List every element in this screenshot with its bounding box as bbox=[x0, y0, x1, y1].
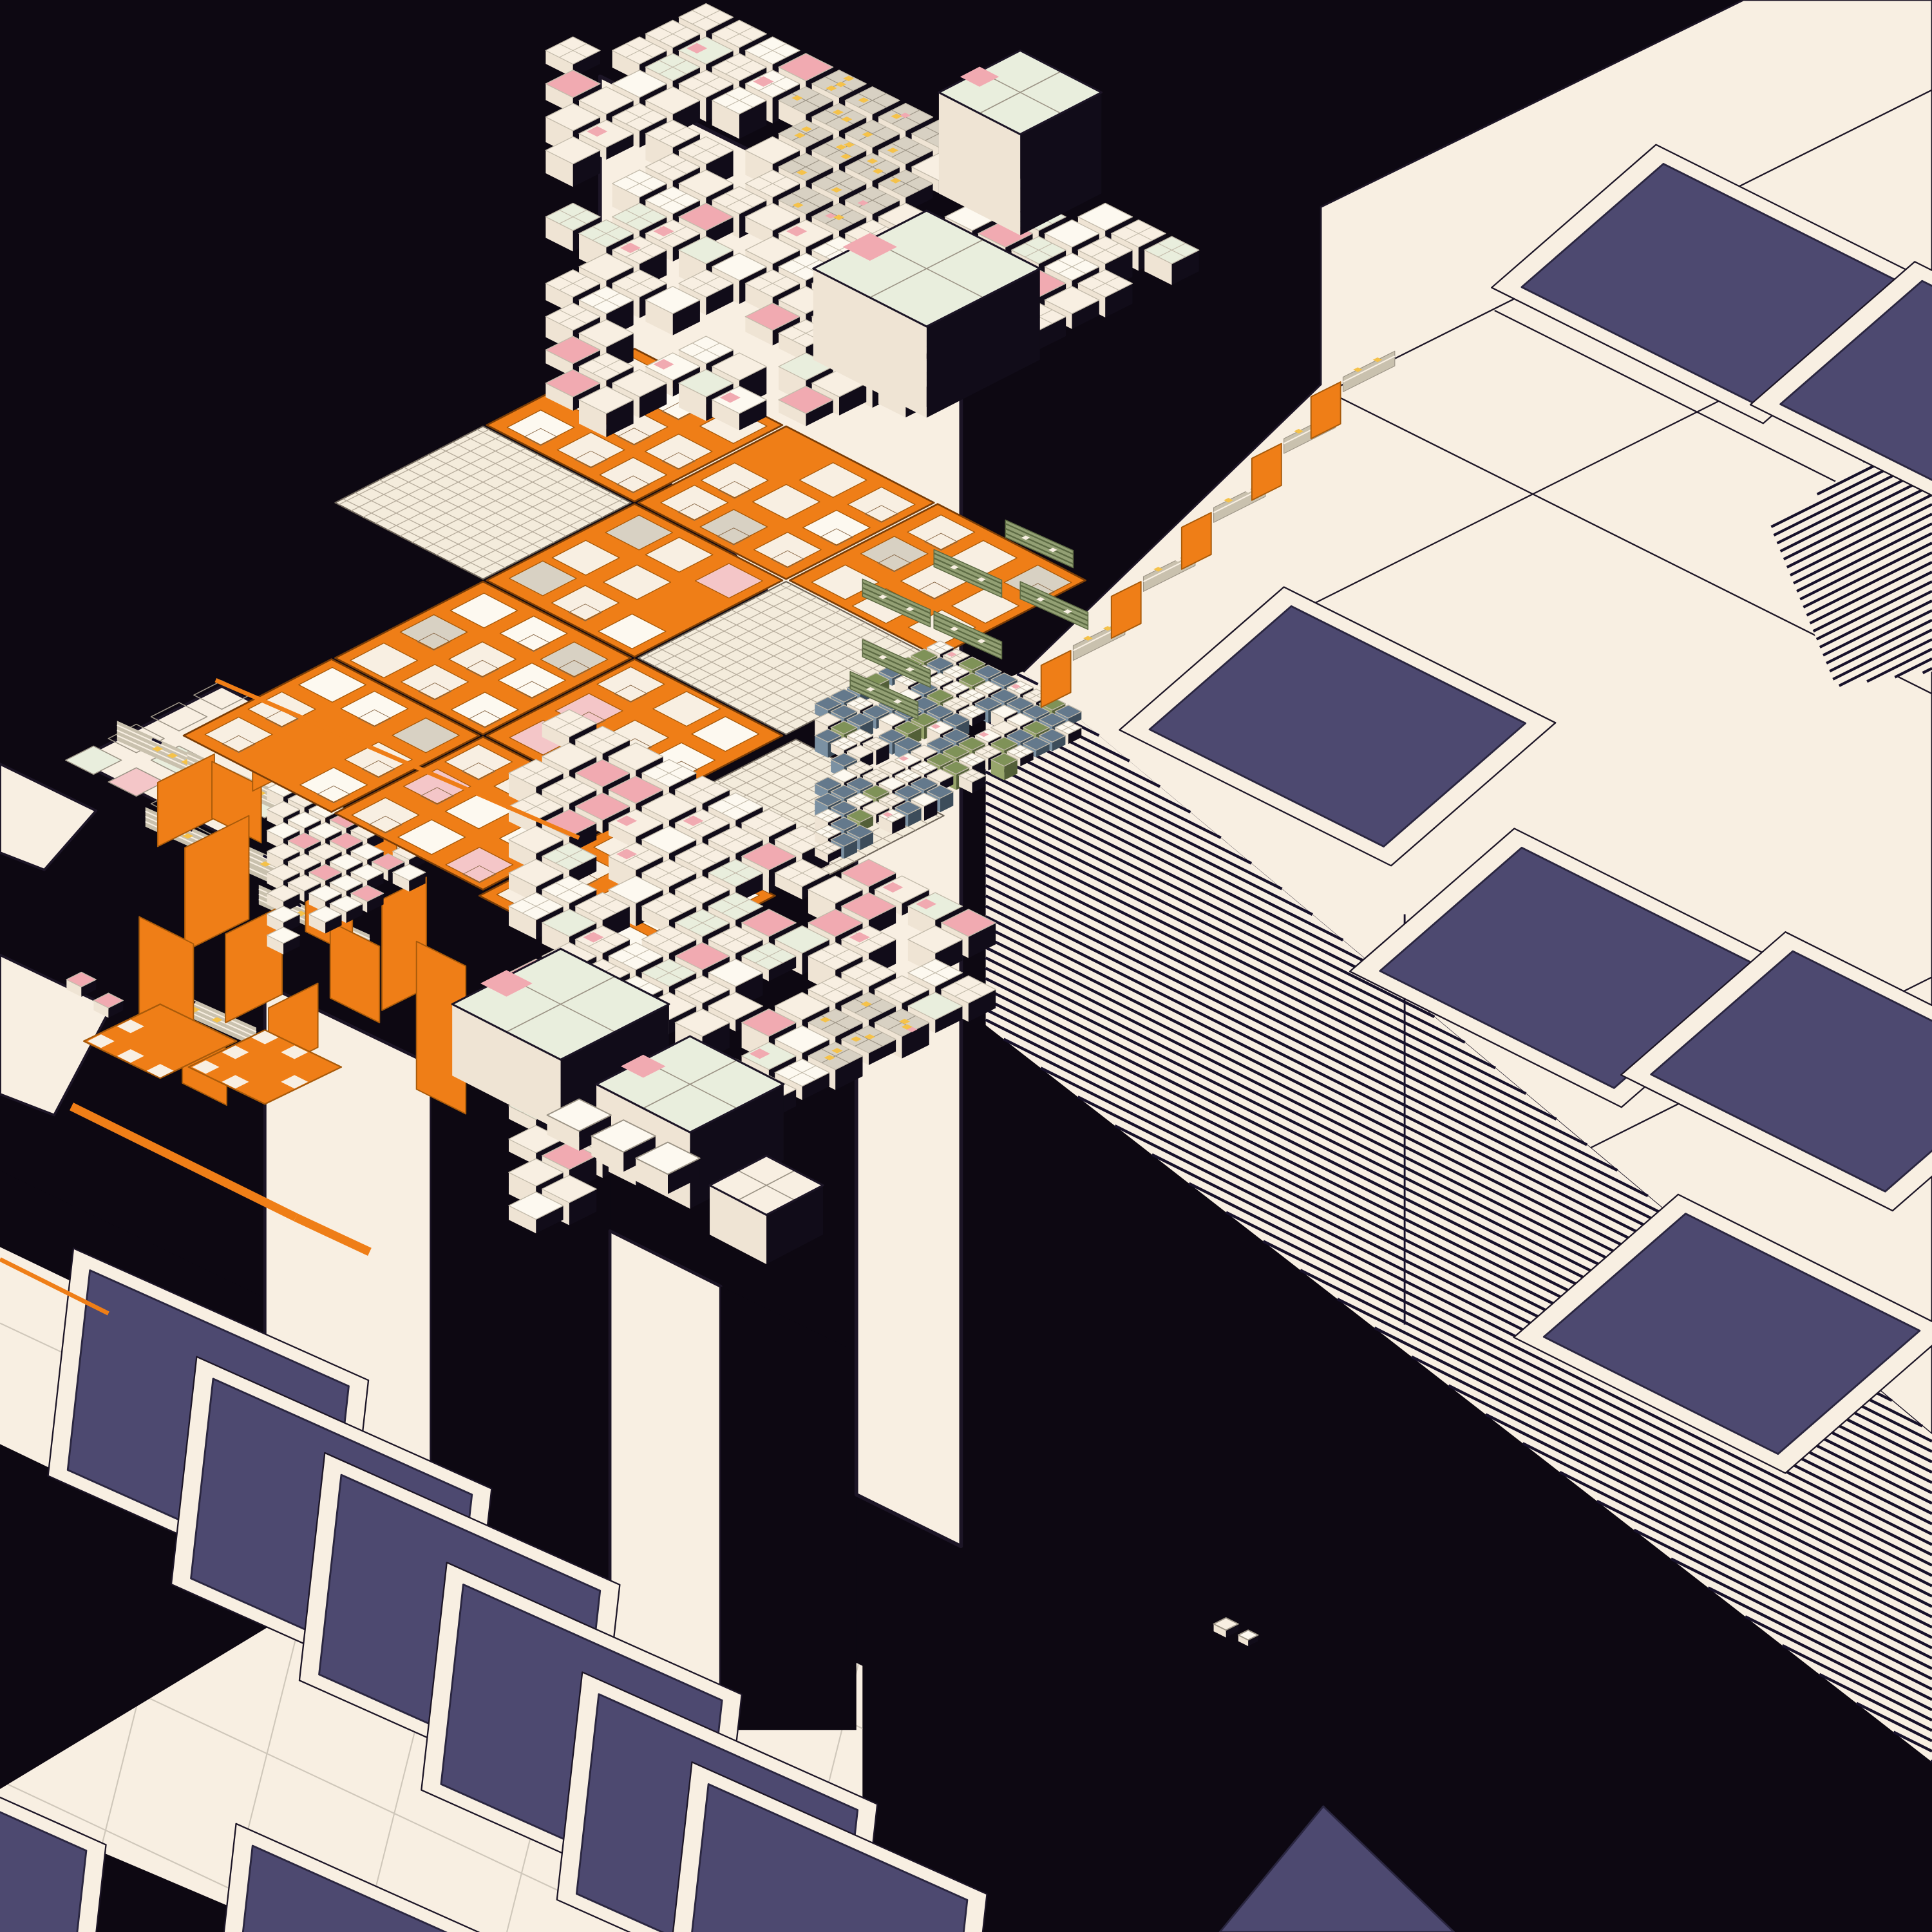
wall-gap-bc bbox=[721, 1286, 856, 1730]
isometric-generative-city bbox=[0, 0, 1932, 1932]
artwork-canvas bbox=[0, 0, 1932, 1932]
